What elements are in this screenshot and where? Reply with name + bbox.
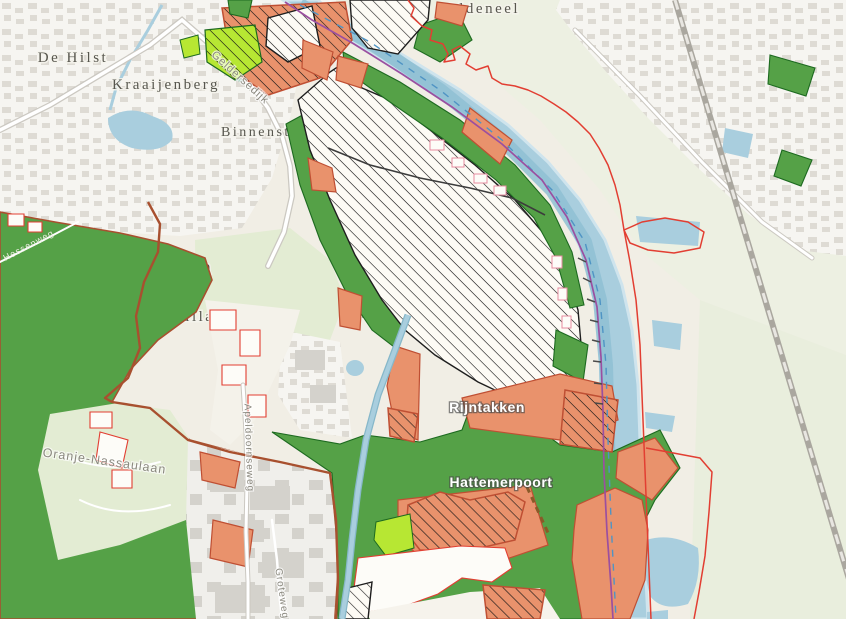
enclave-parcel	[240, 330, 260, 356]
hatched-salmon-canal	[388, 408, 418, 442]
industrial-building	[310, 385, 336, 403]
industrial-building	[215, 585, 265, 613]
farm-building	[562, 316, 571, 328]
fields-southeast	[690, 300, 846, 619]
label-kraaijenberg: Kraaijenberg	[112, 77, 220, 93]
enclave-parcel	[222, 365, 246, 385]
enclave-parcel	[210, 310, 236, 330]
farm-building	[558, 288, 567, 300]
salmon-riverbank-south	[572, 488, 648, 619]
hatched-salmon-rijntakken	[560, 390, 618, 452]
map-viewport[interactable]: De Hilst Kraaijenberg Binnenstad Oldenee…	[0, 0, 846, 619]
enclave-parcel	[112, 470, 132, 488]
pond-canal	[346, 360, 364, 376]
pond-east-2	[652, 320, 682, 350]
label-rijntakken: Rijntakken	[449, 399, 525, 415]
enclave-parcel	[28, 222, 42, 232]
hatched-salmon-bottom	[483, 585, 545, 619]
industrial-building	[295, 350, 325, 370]
enclave-parcel	[90, 412, 112, 428]
label-hattemerpoort: Hattemerpoort	[450, 474, 553, 490]
farm-building	[474, 174, 487, 183]
enclave-parcel	[8, 214, 24, 226]
pond-southeast-2	[645, 537, 699, 606]
salmon-het-veen	[338, 288, 362, 330]
farm-building	[552, 256, 562, 268]
farm-building	[430, 140, 444, 150]
map-canvas[interactable]: De Hilst Kraaijenberg Binnenstad Oldenee…	[0, 0, 846, 619]
label-de-hilst: De Hilst	[38, 50, 108, 66]
farm-building	[452, 158, 464, 167]
farm-building	[494, 186, 506, 195]
